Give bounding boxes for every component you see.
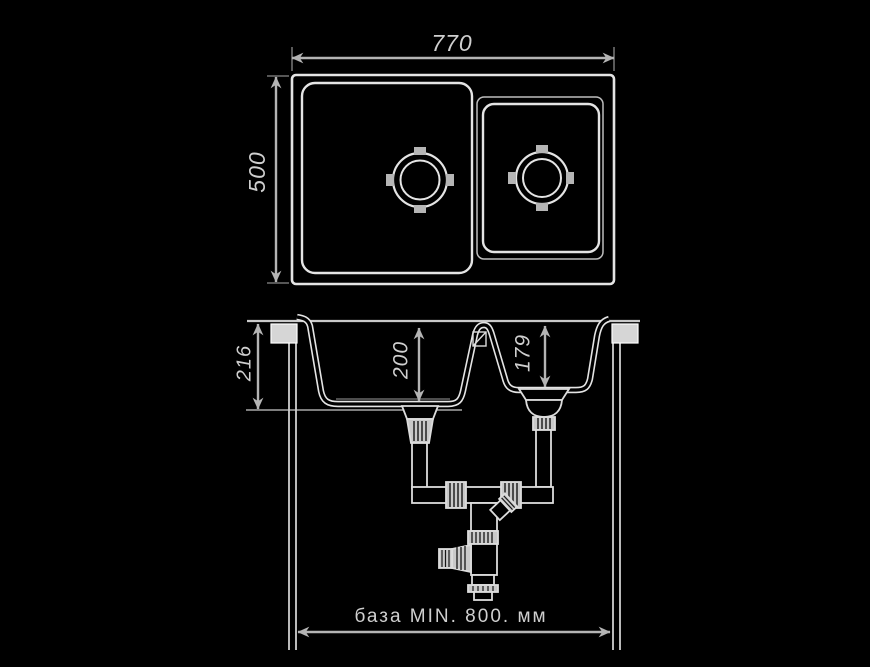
drain-tab-icon (566, 172, 574, 184)
dim-label-depth: 500 (244, 151, 270, 192)
drain-tab-icon (536, 145, 548, 153)
dim-label-cabinet-base: база MIN. 800. мм (354, 606, 547, 627)
dim-label-second-bowl-depth: 179 (512, 334, 535, 372)
drain-tab-icon (446, 174, 454, 186)
drain-tab-icon (414, 147, 426, 155)
drain-tab-icon (536, 203, 548, 211)
sink-technical-drawing: 770 500 (0, 0, 870, 667)
drawing-canvas: 770 500 (0, 0, 870, 667)
countertop-block-right (612, 324, 638, 343)
drain-tab-icon (386, 174, 394, 186)
countertop-block-left (271, 324, 297, 343)
drain-tab-icon (508, 172, 516, 184)
dim-label-width: 770 (431, 30, 472, 56)
dim-label-overall-depth: 216 (233, 345, 255, 382)
dim-label-main-bowl-depth: 200 (390, 341, 413, 380)
drain-tab-icon (414, 205, 426, 213)
background (0, 0, 870, 667)
